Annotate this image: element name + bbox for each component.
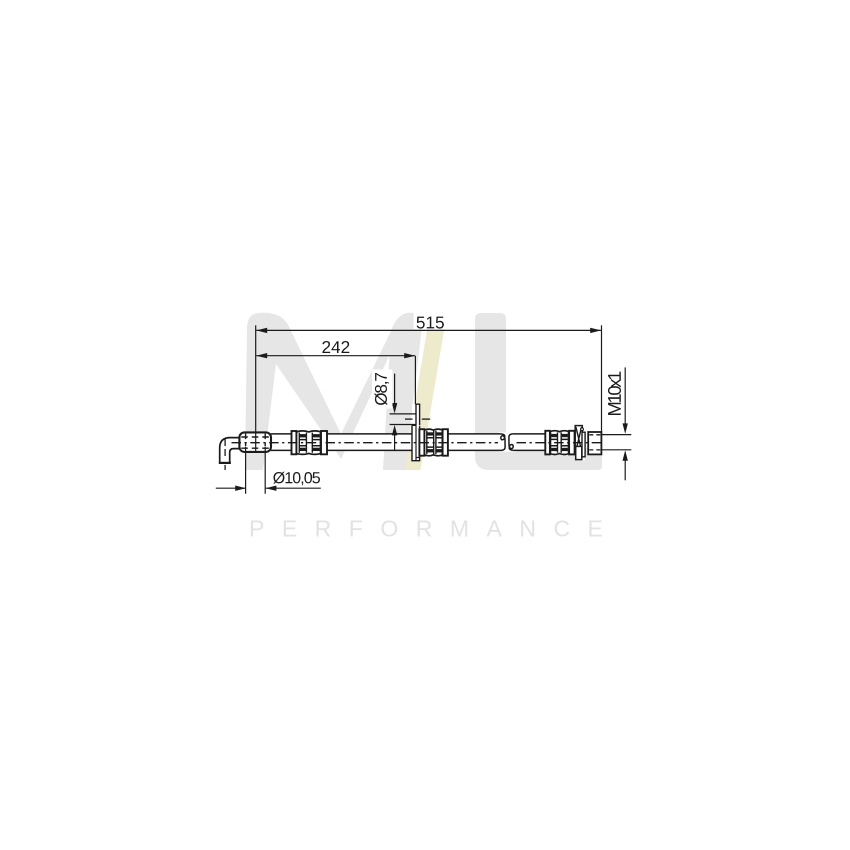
svg-text:PERFORMANCE: PERFORMANCE xyxy=(249,516,620,542)
